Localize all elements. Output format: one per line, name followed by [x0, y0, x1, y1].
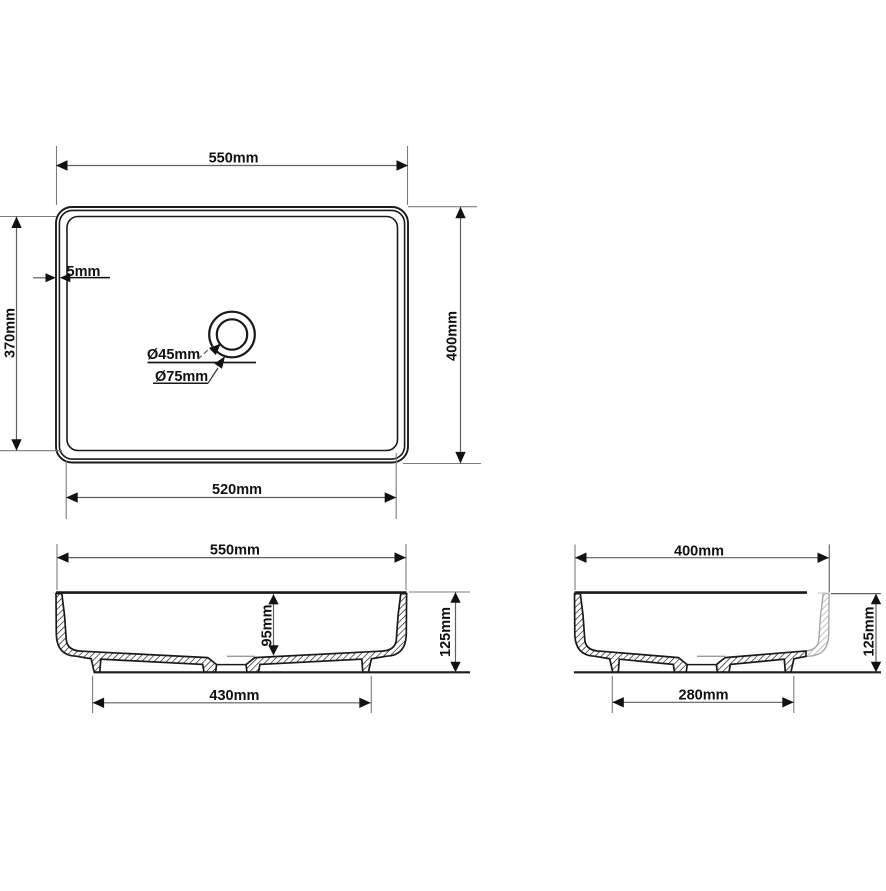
svg-text:Ø45mm: Ø45mm [147, 347, 200, 363]
svg-text:125mm: 125mm [438, 607, 454, 657]
svg-text:Ø75mm: Ø75mm [155, 369, 208, 385]
svg-text:280mm: 280mm [679, 688, 729, 704]
svg-text:400mm: 400mm [674, 543, 724, 559]
svg-text:550mm: 550mm [210, 542, 260, 558]
svg-text:550mm: 550mm [209, 151, 259, 167]
svg-text:520mm: 520mm [212, 482, 262, 498]
svg-text:370mm: 370mm [2, 308, 18, 358]
svg-text:400mm: 400mm [445, 311, 461, 361]
svg-text:125mm: 125mm [862, 607, 878, 657]
svg-text:5mm: 5mm [67, 264, 101, 280]
svg-text:95mm: 95mm [260, 605, 276, 647]
svg-text:430mm: 430mm [209, 688, 259, 704]
